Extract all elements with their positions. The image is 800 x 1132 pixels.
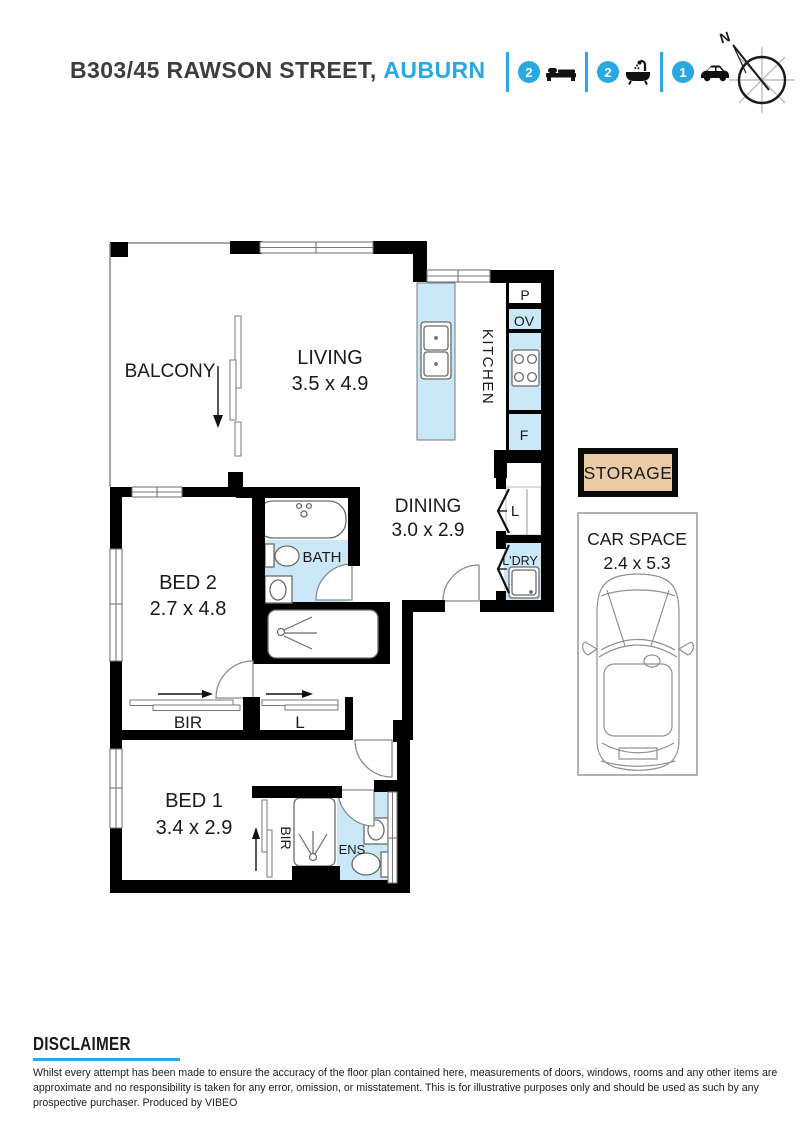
ens-label: ENS bbox=[339, 842, 366, 857]
bed1-window bbox=[110, 749, 122, 828]
bed-count-badge: 2 bbox=[518, 61, 540, 83]
bath-count-badge: 2 bbox=[597, 61, 619, 83]
compass: N bbox=[716, 26, 800, 118]
toilet-bowl bbox=[275, 546, 299, 566]
bath-label: BATH bbox=[303, 549, 342, 566]
disclaimer-title: DISCLAIMER bbox=[33, 1034, 669, 1055]
car-space-label: CAR SPACE bbox=[587, 529, 687, 549]
dining-dims: 3.0 x 2.9 bbox=[392, 520, 465, 541]
drain-icon bbox=[301, 511, 307, 517]
bathrooms-feature: 2 bbox=[597, 59, 651, 85]
divider bbox=[660, 52, 663, 92]
balcony-bed2-window bbox=[132, 487, 182, 497]
bed2-label: BED 2 bbox=[159, 572, 217, 594]
pantry-label: P bbox=[520, 287, 529, 303]
divider bbox=[506, 52, 509, 92]
bed1-bir-slider bbox=[262, 800, 267, 852]
dining-label: DINING bbox=[395, 496, 462, 517]
balcony-label: BALCONY bbox=[125, 361, 216, 382]
disclaimer-section: DISCLAIMER Whilst every attempt has been… bbox=[33, 1034, 781, 1112]
ensuite-window bbox=[388, 792, 397, 883]
living-label: LIVING bbox=[297, 347, 363, 369]
feature-bar: 2 2 1 bbox=[506, 51, 730, 93]
storage-label: STORAGE bbox=[584, 463, 673, 483]
linen-label: L bbox=[511, 503, 519, 520]
bir-slider bbox=[153, 705, 240, 711]
address-text: B303/45 RAWSON STREET, bbox=[70, 57, 377, 83]
divider bbox=[585, 52, 588, 92]
bir-label: BIR bbox=[174, 713, 202, 732]
bed1-dims: 3.4 x 2.9 bbox=[156, 817, 233, 839]
disclaimer-body: Whilst every attempt has been made to en… bbox=[33, 1066, 781, 1112]
floorplan-page: BALCONY LIVING 3.5 x 4.9 DINING 3.0 x 2.… bbox=[0, 0, 800, 1132]
kitchen-label: KITCHEN bbox=[479, 329, 496, 405]
bath-icon bbox=[625, 59, 651, 85]
linen2-label: L bbox=[295, 713, 304, 732]
tap-icon bbox=[307, 504, 312, 509]
kitchen-window bbox=[427, 270, 490, 282]
bed2-dims: 2.7 x 4.8 bbox=[150, 598, 227, 620]
toilet-cistern bbox=[265, 544, 274, 567]
bed-icon bbox=[546, 62, 576, 82]
hall-door bbox=[355, 740, 392, 777]
oven-label: OV bbox=[514, 313, 535, 329]
floor-plan-drawing: BALCONY LIVING 3.5 x 4.9 DINING 3.0 x 2.… bbox=[0, 0, 800, 1132]
bed2-door bbox=[216, 661, 253, 698]
tap-icon bbox=[297, 504, 302, 509]
vanity-basin bbox=[270, 580, 286, 600]
living-window bbox=[260, 242, 373, 253]
entry-door bbox=[443, 565, 479, 601]
bed1-bir-label: BIR bbox=[278, 826, 294, 849]
suburb-text: AUBURN bbox=[383, 57, 485, 83]
north-label: N bbox=[718, 28, 733, 46]
balcony-slider bbox=[230, 360, 236, 420]
linen-slider bbox=[285, 705, 338, 710]
bed2-window bbox=[110, 549, 122, 661]
laundry-label: L'DRY bbox=[502, 554, 538, 568]
bed1-bir-slider bbox=[267, 830, 272, 877]
page-title: B303/45 RAWSON STREET, AUBURN bbox=[70, 57, 485, 84]
living-dims: 3.5 x 4.9 bbox=[292, 373, 369, 395]
fridge-label: F bbox=[520, 427, 529, 443]
disclaimer-underline bbox=[33, 1058, 180, 1061]
storage-box: STORAGE bbox=[581, 451, 675, 494]
balcony-slider bbox=[235, 422, 241, 456]
ensuite-shower-pan bbox=[294, 798, 335, 866]
bed1-label: BED 1 bbox=[165, 790, 223, 812]
bedrooms-feature: 2 bbox=[518, 61, 576, 83]
car-space: CAR SPACE 2.4 x 5.3 bbox=[578, 513, 697, 775]
car-space-dims: 2.4 x 5.3 bbox=[603, 553, 670, 573]
car-count-badge: 1 bbox=[672, 61, 694, 83]
